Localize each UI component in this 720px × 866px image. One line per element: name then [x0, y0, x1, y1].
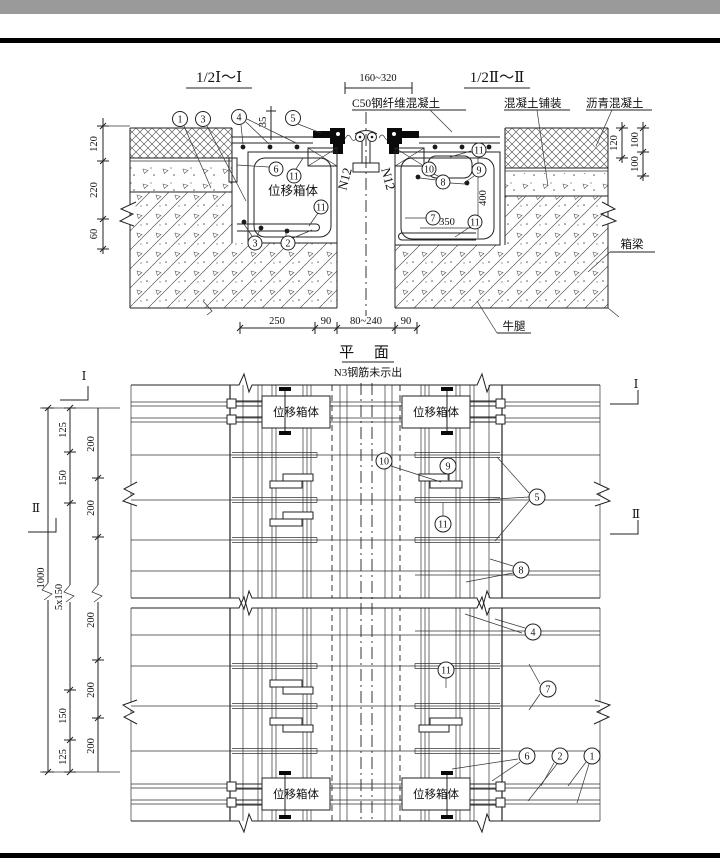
svg-text:4: 4: [531, 628, 536, 639]
dim-left-120: 120: [89, 136, 100, 152]
callout-10: 10: [422, 162, 436, 176]
callout-9: 9: [472, 163, 486, 177]
plan-callout-7: 7: [540, 681, 556, 697]
plan-dim-150a: 150: [58, 470, 69, 486]
svg-text:2: 2: [558, 752, 563, 763]
box-width-dim: 350: [439, 217, 455, 228]
dim-bottom-90b: 90: [401, 316, 412, 327]
section-title-left: 1/2Ⅰ～Ⅰ: [196, 70, 242, 86]
plan-box-label-lr: 位移箱体: [413, 787, 459, 801]
gap-dimension: 160~320: [359, 73, 396, 84]
callout-8: 8: [436, 175, 450, 189]
svg-text:10: 10: [379, 457, 389, 468]
plan-box-label-ll: 位移箱体: [273, 787, 319, 801]
plan-dim-125b: 125: [58, 749, 69, 765]
svg-text:11: 11: [474, 146, 484, 157]
callout-5: 5: [286, 111, 301, 126]
svg-text:7: 7: [546, 685, 551, 696]
plan-box-label-ur: 位移箱体: [413, 405, 459, 419]
callout-4: 4: [232, 110, 247, 125]
svg-text:1: 1: [178, 115, 183, 126]
svg-text:5: 5: [535, 493, 540, 504]
svg-text:5: 5: [291, 114, 296, 125]
right-deck-block: 400 350: [387, 128, 619, 317]
plan-view: 平 面 N3钢筋未示出: [28, 345, 640, 832]
plan-dim-125a: 125: [58, 422, 69, 438]
svg-text:11: 11: [289, 172, 299, 183]
plan-callout-2: 2: [552, 748, 568, 764]
left-deck-block: 位移箱体: [120, 128, 345, 315]
callout-2: 2: [281, 236, 295, 250]
plan-callout-9: 9: [440, 458, 456, 474]
svg-text:11: 11: [470, 218, 480, 229]
svg-text:6: 6: [274, 165, 279, 176]
label-c50-concrete: C50钢纤维混凝土: [352, 96, 440, 110]
svg-text:3: 3: [253, 239, 258, 250]
top-rule: [0, 38, 720, 43]
label-box-girder: 箱梁: [621, 237, 644, 251]
dim-left-220: 220: [89, 182, 100, 198]
plan-callout-4: 4: [525, 624, 541, 640]
dim-bottom-gap: 80~240: [350, 316, 382, 327]
plan-callout-11l: 11: [438, 662, 454, 678]
plan-callout-5: 5: [529, 489, 545, 505]
section-title-right: 1/2Ⅱ～Ⅱ: [470, 70, 525, 86]
plan-dim-200e: 200: [86, 738, 97, 754]
plan-dim-200a: 200: [86, 436, 97, 452]
mark-I-left: Ⅰ: [82, 369, 87, 383]
dim-left-60: 60: [89, 229, 100, 240]
bottom-dim-chain: 250 90 80~240 90: [237, 316, 420, 334]
mark-II-right: Ⅱ: [632, 507, 640, 521]
svg-text:7: 7: [431, 214, 436, 225]
plan-dim-200d: 200: [86, 682, 97, 698]
label-corbel: 牛腿: [503, 319, 526, 333]
mark-II-left: Ⅱ: [32, 501, 40, 515]
callout-7: 7: [426, 211, 440, 225]
plan-callouts: 10 9 5 11 8 4 11 7 6 2: [376, 453, 600, 803]
svg-text:3: 3: [201, 115, 206, 126]
svg-text:9: 9: [477, 166, 482, 177]
cad-drawing: 1/2Ⅰ～Ⅰ 1/2Ⅱ～Ⅱ 160~320 C50钢纤维混凝土 混凝土铺装 沥青…: [0, 0, 720, 866]
plan-callout-10: 10: [376, 453, 392, 469]
svg-text:4: 4: [237, 113, 242, 124]
dim-plate-35: 35: [258, 117, 269, 128]
dim-bottom-250: 250: [269, 316, 285, 327]
callout-6: 6: [269, 162, 283, 176]
edge-angle-steel-right: [387, 128, 419, 154]
displacement-box-label-xsec: 位移箱体: [268, 183, 319, 198]
svg-text:6: 6: [525, 752, 530, 763]
dim-right-100a: 100: [630, 132, 641, 148]
svg-text:11: 11: [438, 520, 448, 531]
plan-callout-11u: 11: [435, 516, 451, 532]
dim-bottom-90a: 90: [321, 316, 332, 327]
svg-text:8: 8: [441, 178, 446, 189]
callout-11d: 11: [468, 215, 482, 229]
drawing-sheet: 1/2Ⅰ～Ⅰ 1/2Ⅱ～Ⅱ 160~320 C50钢纤维混凝土 混凝土铺装 沥青…: [0, 0, 720, 866]
callout-3: 3: [196, 112, 211, 127]
svg-text:8: 8: [519, 566, 524, 577]
plan-callout-1: 1: [584, 748, 600, 764]
callout-3b: 3: [248, 236, 262, 250]
plan-dim-150b: 150: [58, 708, 69, 724]
callout-11c: 11: [472, 143, 486, 157]
cross-section-view: 1/2Ⅰ～Ⅰ 1/2Ⅱ～Ⅱ 160~320 C50钢纤维混凝土 混凝土铺装 沥青…: [89, 70, 655, 334]
top-gray-bar: [0, 0, 720, 14]
callout-1: 1: [173, 112, 188, 127]
box-height-dim: 400: [478, 190, 489, 206]
plan-dim-1000: 1000: [36, 568, 47, 589]
right-dim-chains: 120 100 100: [609, 122, 649, 181]
rebar-n12-left: N12: [335, 166, 355, 192]
label-asphalt-concrete: 沥青混凝土: [586, 96, 644, 110]
plan-title: 平 面: [339, 345, 397, 361]
bottom-rule: [0, 853, 720, 858]
svg-text:9: 9: [446, 462, 451, 473]
left-dim-chain: 120 220 60: [89, 118, 130, 254]
plan-dim-5x150: 5x150: [54, 584, 65, 610]
plan-dim-200b: 200: [86, 500, 97, 516]
mark-I-right: Ⅰ: [634, 377, 639, 391]
svg-text:11: 11: [316, 203, 326, 214]
plan-subtitle: N3钢筋未示出: [334, 365, 402, 379]
svg-text:2: 2: [286, 239, 291, 250]
plan-callout-8: 8: [513, 562, 529, 578]
dim-right-120: 120: [609, 135, 620, 151]
callout-11a: 11: [287, 169, 301, 183]
plan-dim-200c: 200: [86, 612, 97, 628]
dim-right-100b: 100: [630, 156, 641, 172]
plan-callout-6: 6: [519, 748, 535, 764]
callout-11b: 11: [314, 200, 328, 214]
label-concrete-paving: 混凝土铺装: [504, 96, 562, 110]
plan-box-label-ul: 位移箱体: [273, 405, 319, 419]
section-marks: Ⅰ Ⅰ Ⅱ Ⅱ: [28, 369, 640, 534]
svg-text:1: 1: [590, 752, 595, 763]
svg-text:10: 10: [424, 165, 434, 176]
svg-text:11: 11: [441, 666, 451, 677]
plan-dim-chains: 1000 125 150 5x150 150 125: [36, 405, 120, 775]
